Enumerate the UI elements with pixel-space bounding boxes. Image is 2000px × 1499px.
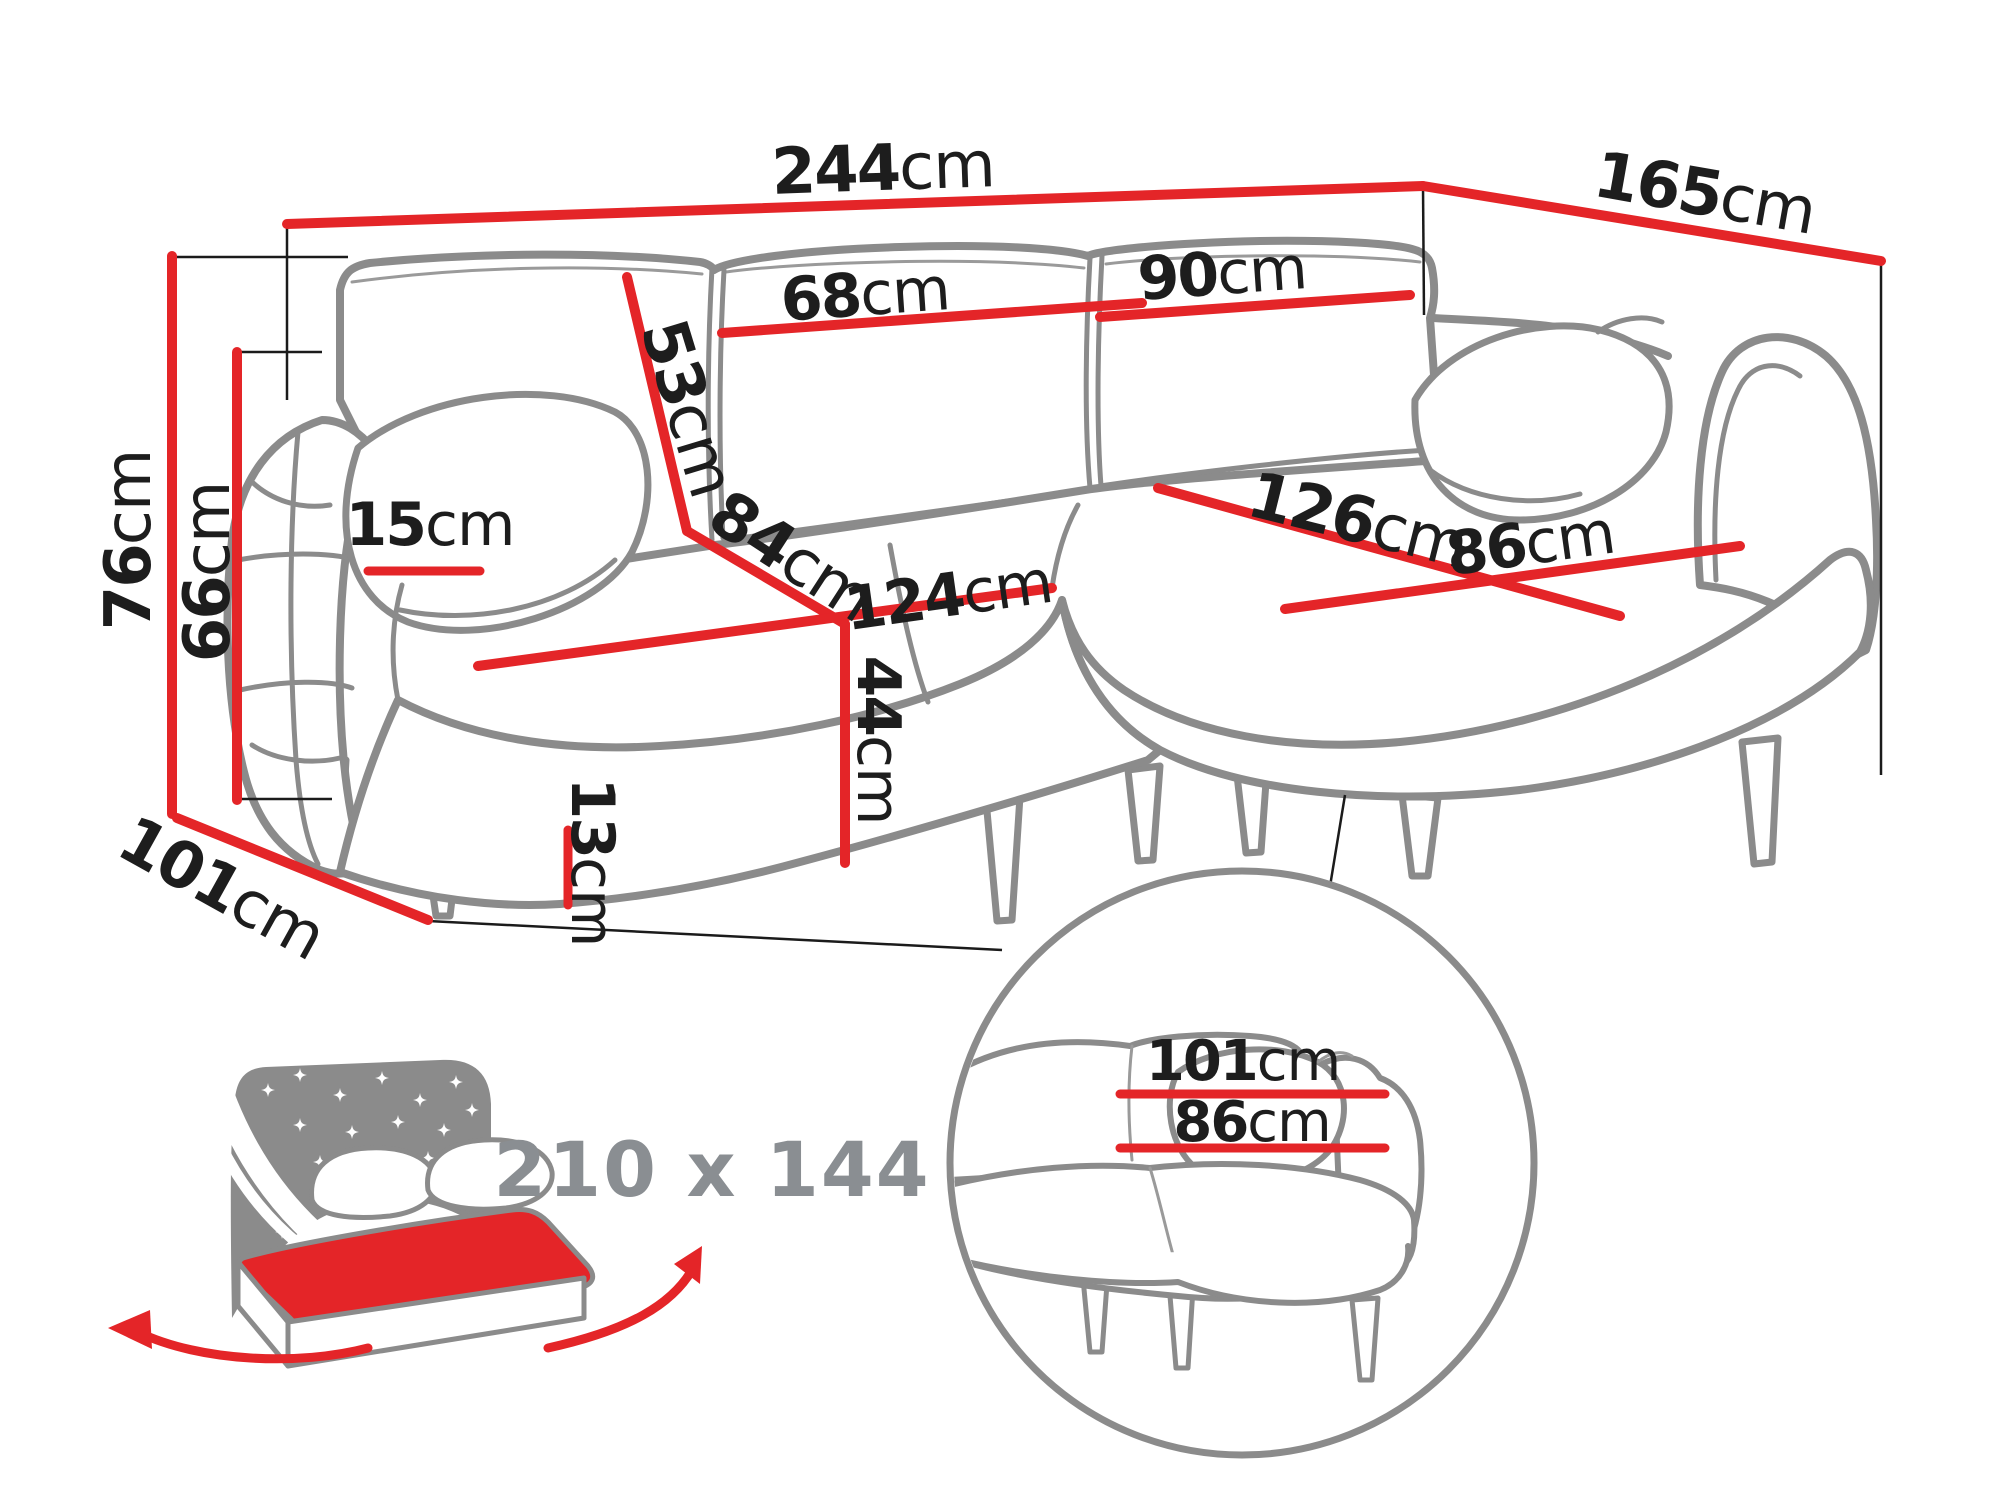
label-68cm: 68cm [778,254,951,336]
leg-chaise-front [1402,795,1438,876]
leg-middle [986,796,1020,921]
detail-label-101cm: 101cm [1146,1029,1340,1094]
diagram-canvas: 244cm 165cm 76cm 66cm 101cm 15cm 53cm 68… [0,0,2000,1499]
sofa-drawing [228,241,1878,921]
underline-legs [428,921,1002,950]
drop-line-mid [1423,186,1424,315]
label-15cm: 15cm [346,490,515,560]
label-76cm: 76cm [92,450,166,631]
detail-label-86cm: 86cm [1173,1090,1330,1155]
detail-view: 101cm 86cm [950,871,1534,1455]
arrow-left-head [108,1310,152,1349]
chaise-seam [1052,505,1078,588]
bed-size-label: 210 x 144 [493,1125,930,1214]
label-44cm: 44cm [843,656,913,825]
label-13cm: 13cm [557,778,627,947]
label-90cm: 90cm [1135,233,1308,315]
label-66cm: 66cm [171,482,245,663]
bed-pillow-1 [312,1148,437,1218]
leg-seat-right-1 [1128,766,1160,861]
label-124cm: 124cm [840,547,1056,645]
chaise-pillow [1415,326,1669,520]
label-244cm: 244cm [770,128,996,210]
sofa-dimension-diagram: 244cm 165cm 76cm 66cm 101cm 15cm 53cm 68… [0,0,2000,1499]
leg-chaise-right [1742,738,1778,864]
seat-skirt [340,600,1160,905]
